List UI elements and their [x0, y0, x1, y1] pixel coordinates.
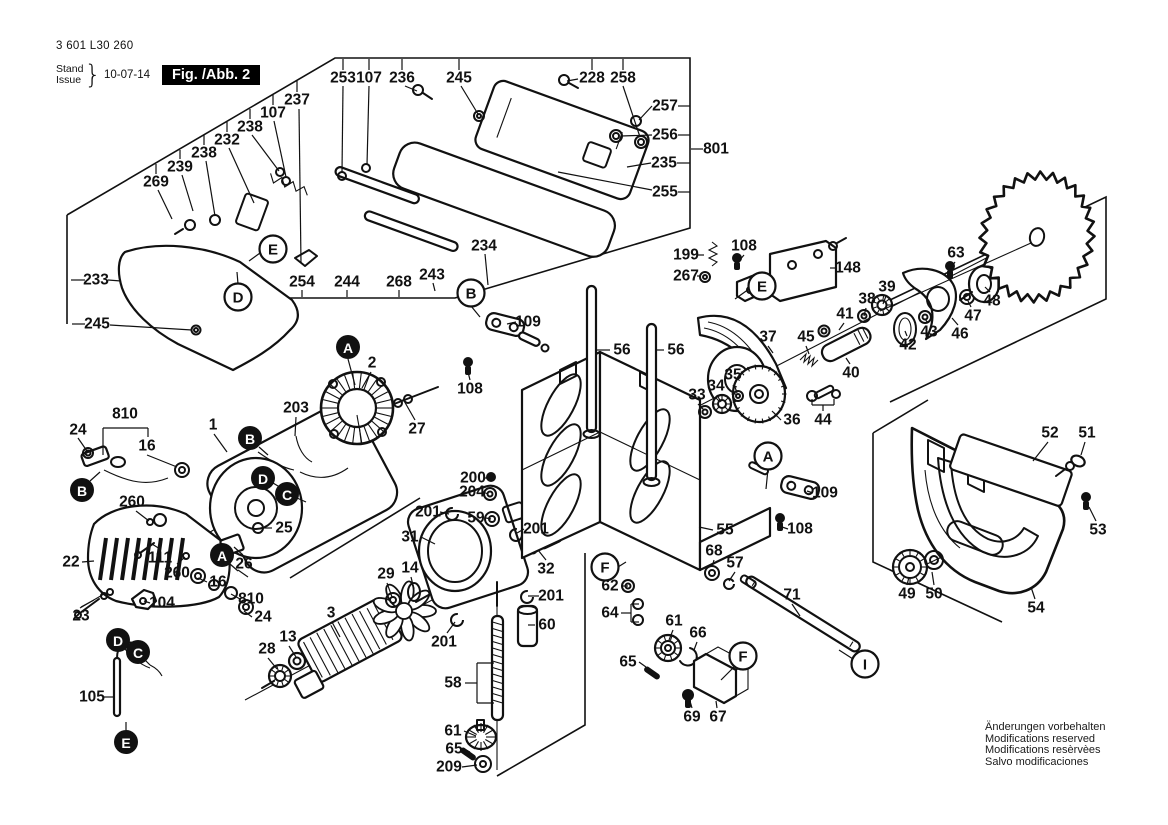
part-label-28: 28	[258, 641, 276, 658]
part-label-148: 148	[835, 260, 861, 277]
part-label-16: 16	[209, 574, 227, 591]
part-label-267: 267	[673, 268, 699, 285]
assembly-marker-E: E	[749, 273, 776, 300]
part-label-23: 23	[72, 608, 90, 625]
brace-glyph: }	[84, 60, 101, 90]
part-label-68: 68	[705, 543, 723, 560]
part-label-35: 35	[724, 367, 742, 384]
rights-note: Änderungen vorbehalten Modifications res…	[985, 722, 1105, 768]
part-label-45: 45	[797, 329, 815, 346]
part-label-53: 53	[1089, 522, 1107, 539]
assembly-marker-A: A	[336, 335, 360, 359]
part-label-33: 33	[688, 387, 706, 404]
part-label-67: 67	[709, 709, 726, 726]
part-label-66: 66	[689, 625, 707, 642]
svg-text:A: A	[217, 548, 227, 564]
part-label-63: 63	[947, 245, 965, 262]
assembly-marker-B: B	[238, 426, 262, 450]
part-label-238: 238	[237, 119, 263, 136]
part-label-1: 1	[209, 417, 218, 434]
part-label-256: 256	[652, 127, 678, 144]
svg-text:B: B	[466, 286, 477, 303]
svg-text:F: F	[738, 649, 747, 666]
part-label-61: 61	[444, 723, 462, 740]
part-label-203: 203	[283, 400, 309, 417]
part-label-2: 2	[368, 355, 377, 372]
part-label-236: 236	[389, 70, 415, 87]
part-label-24: 24	[254, 609, 272, 626]
part-label-47: 47	[964, 308, 981, 325]
upper-guard-assembly	[119, 75, 651, 370]
assembly-marker-A: A	[755, 443, 782, 470]
part-label-56: 56	[613, 342, 631, 359]
part-label-260: 260	[164, 565, 190, 582]
assembly-marker-B: B	[458, 280, 485, 307]
part-label-54: 54	[1027, 600, 1045, 617]
part-label-64: 64	[601, 605, 619, 622]
part-label-269: 269	[143, 174, 169, 191]
part-label-235: 235	[651, 155, 677, 172]
part-label-29: 29	[377, 566, 395, 583]
part-label-38: 38	[858, 291, 876, 308]
title-block: 3 601 L30 260 Stand Issue } 10-07-14 Fig…	[56, 40, 260, 90]
part-label-34: 34	[707, 378, 725, 395]
svg-text:C: C	[133, 645, 143, 661]
assembly-marker-C: C	[275, 482, 299, 506]
parts-diagram-page: 3 601 L30 260 Stand Issue } 10-07-14 Fig…	[0, 0, 1168, 825]
assembly-marker-A: A	[210, 543, 234, 567]
part-label-56: 56	[667, 342, 685, 359]
part-label-228: 228	[579, 70, 605, 87]
part-label-43: 43	[920, 324, 938, 341]
assembly-marker-E: E	[114, 730, 138, 754]
assembly-marker-E: E	[260, 236, 287, 263]
assembly-marker-F: F	[730, 643, 757, 670]
part-label-201: 201	[523, 521, 549, 538]
rights-line-es: Salvo modificaciones	[985, 757, 1105, 769]
part-label-3: 3	[327, 605, 336, 622]
part-label-257: 257	[652, 98, 678, 115]
svg-text:D: D	[233, 290, 244, 307]
part-label-61: 61	[665, 613, 683, 630]
part-label-41: 41	[836, 306, 854, 323]
svg-text:B: B	[77, 483, 87, 499]
part-label-243: 243	[419, 267, 445, 284]
svg-text:E: E	[268, 242, 278, 259]
part-label-253: 253	[330, 70, 356, 87]
part-label-59: 59	[467, 510, 485, 527]
svg-text:I: I	[863, 657, 867, 674]
part-label-50: 50	[925, 586, 942, 603]
part-label-199: 199	[673, 247, 699, 264]
part-label-46: 46	[951, 326, 969, 343]
part-label-52: 52	[1041, 425, 1058, 442]
part-label-201: 201	[431, 634, 457, 651]
part-label-27: 27	[408, 421, 425, 438]
part-label-31: 31	[401, 529, 419, 546]
part-label-14: 14	[401, 560, 419, 577]
part-label-239: 239	[167, 159, 193, 176]
part-label-65: 65	[445, 741, 463, 758]
part-label-39: 39	[878, 279, 896, 296]
assembly-marker-C: C	[126, 640, 150, 664]
svg-text:E: E	[757, 279, 767, 296]
part-label-37: 37	[759, 329, 776, 346]
part-label-71: 71	[783, 587, 801, 604]
part-label-22: 22	[62, 554, 79, 571]
svg-text:A: A	[343, 340, 353, 356]
part-label-255: 255	[652, 184, 678, 201]
part-label-810: 810	[238, 591, 264, 608]
part-label-105: 105	[79, 689, 105, 706]
part-label-260: 260	[119, 494, 145, 511]
motor-assembly	[75, 372, 438, 716]
assembly-marker-D: D	[251, 466, 275, 490]
part-label-24: 24	[69, 422, 87, 439]
part-label-258: 258	[610, 70, 636, 87]
part-label-108: 108	[787, 521, 813, 538]
part-label-233: 233	[83, 272, 109, 289]
part-label-58: 58	[444, 675, 462, 692]
clamp-assembly	[643, 574, 862, 708]
part-label-104: 104	[149, 595, 175, 612]
part-label-60: 60	[538, 617, 555, 634]
part-label-48: 48	[983, 293, 1001, 310]
part-label-57: 57	[726, 555, 743, 572]
part-label-108: 108	[457, 381, 483, 398]
part-label-49: 49	[898, 586, 916, 603]
part-label-234: 234	[471, 238, 497, 255]
part-label-69: 69	[683, 709, 701, 726]
part-label-107: 107	[260, 105, 286, 122]
part-label-40: 40	[842, 365, 859, 382]
assembly-marker-D: D	[106, 628, 130, 652]
part-label-55: 55	[716, 522, 734, 539]
part-label-16: 16	[138, 438, 156, 455]
exploded-view-drawing: 2531072362452282582572562352558012371072…	[0, 0, 1168, 825]
part-label-232: 232	[214, 132, 240, 149]
svg-text:F: F	[600, 560, 609, 577]
part-number: 3 601 L30 260	[56, 40, 260, 52]
part-label-268: 268	[386, 274, 412, 291]
part-label-109: 109	[812, 485, 838, 502]
assembly-marker-D: D	[225, 284, 252, 311]
assembly-marker-F: F	[592, 554, 619, 581]
part-label-32: 32	[537, 561, 554, 578]
part-label-107: 107	[356, 70, 382, 87]
part-label-245: 245	[446, 70, 472, 87]
issue-label: Issue	[56, 75, 83, 86]
part-label-26: 26	[235, 556, 253, 573]
svg-text:C: C	[282, 487, 292, 503]
part-label-209: 209	[436, 759, 462, 776]
issue-date: 10-07-14	[104, 69, 150, 81]
svg-text:B: B	[245, 431, 255, 447]
part-label-801: 801	[703, 141, 729, 158]
lower-guard-assembly	[893, 428, 1091, 593]
svg-text:A: A	[763, 449, 774, 466]
part-label-65: 65	[619, 654, 637, 671]
part-label-108: 108	[731, 238, 757, 255]
svg-text:E: E	[121, 735, 130, 751]
assembly-marker-I: I	[852, 651, 879, 678]
part-label-51: 51	[1078, 425, 1096, 442]
rights-line-de: Änderungen vorbehalten	[985, 722, 1105, 734]
part-label-238: 238	[191, 145, 217, 162]
part-label-201: 201	[538, 588, 564, 605]
figure-label: Fig. /Abb. 2	[162, 65, 260, 85]
assembly-marker-B: B	[70, 478, 94, 502]
part-label-254: 254	[289, 274, 315, 291]
part-label-13: 13	[279, 629, 297, 646]
rights-line-fr: Modifications resèrvèes	[985, 745, 1105, 757]
part-label-42: 42	[899, 337, 916, 354]
part-label-201: 201	[415, 504, 441, 521]
svg-text:D: D	[258, 471, 268, 487]
part-label-245: 245	[84, 316, 110, 333]
part-label-109: 109	[515, 314, 541, 331]
part-label-810: 810	[112, 406, 138, 423]
part-label-237: 237	[284, 92, 310, 109]
part-label-244: 244	[334, 274, 360, 291]
part-label-36: 36	[783, 412, 801, 429]
part-label-44: 44	[814, 412, 832, 429]
svg-text:D: D	[113, 633, 123, 649]
part-label-25: 25	[275, 520, 293, 537]
part-label-204: 204	[459, 484, 485, 501]
